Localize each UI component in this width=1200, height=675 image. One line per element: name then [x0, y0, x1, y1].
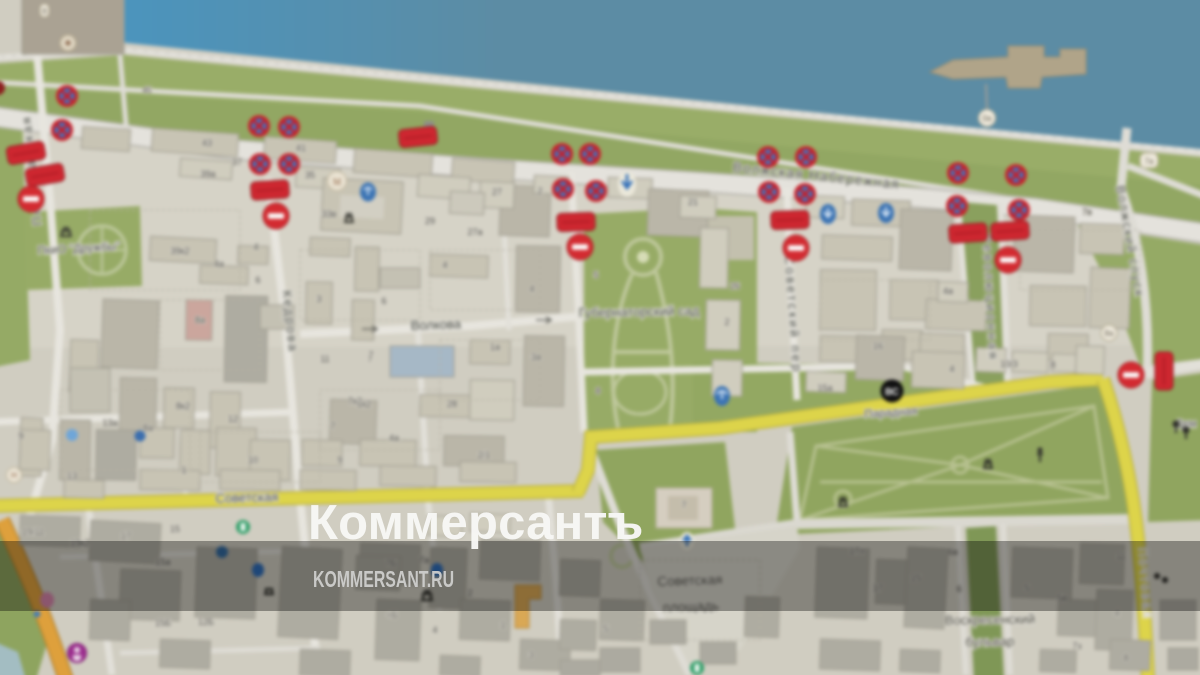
svg-text:2/1: 2/1	[478, 450, 491, 460]
svg-text:4: 4	[529, 284, 534, 294]
svg-text:7з: 7з	[1072, 641, 1081, 651]
svg-text:7а: 7а	[1145, 157, 1154, 166]
svg-text:12Б: 12Б	[198, 617, 214, 627]
svg-text:6: 6	[381, 296, 386, 306]
svg-text:8а: 8а	[1105, 329, 1114, 338]
svg-text:9: 9	[337, 455, 342, 465]
svg-text:27: 27	[492, 187, 502, 197]
svg-text:Советская: Советская	[215, 489, 278, 506]
svg-text:29: 29	[425, 216, 435, 226]
svg-text:1: 1	[500, 620, 505, 630]
svg-text:39к2: 39к2	[171, 246, 190, 256]
svg-text:16: 16	[873, 341, 883, 351]
svg-text:1а: 1а	[490, 342, 500, 352]
svg-text:8: 8	[1050, 360, 1055, 370]
svg-text:5: 5	[593, 270, 598, 280]
svg-text:2: 2	[724, 317, 729, 327]
svg-text:8к2: 8к2	[176, 401, 190, 411]
svg-text:28: 28	[447, 399, 457, 409]
svg-text:7: 7	[330, 421, 335, 431]
svg-text:Волкова: Волкова	[410, 316, 462, 333]
svg-text:М: М	[333, 177, 341, 187]
svg-text:27а: 27а	[467, 227, 482, 237]
svg-text:8: 8	[42, 7, 47, 16]
svg-text:45: 45	[143, 86, 152, 95]
svg-text:4: 4	[432, 625, 437, 635]
svg-text:12: 12	[228, 414, 238, 424]
svg-text:15а: 15а	[817, 383, 832, 393]
svg-text:26: 26	[730, 281, 740, 291]
svg-text:21: 21	[688, 197, 698, 207]
svg-text:4а: 4а	[943, 286, 953, 296]
svg-text:1: 1	[181, 465, 186, 475]
svg-text:7к2: 7к2	[348, 396, 362, 406]
svg-text:9: 9	[18, 431, 23, 441]
svg-text:37: 37	[232, 157, 242, 167]
svg-text:7: 7	[368, 355, 373, 364]
svg-text:0а: 0а	[983, 114, 992, 123]
svg-text:4а: 4а	[214, 259, 224, 269]
svg-text:8: 8	[595, 386, 600, 396]
svg-text:6: 6	[255, 275, 260, 285]
svg-text:7в: 7в	[1082, 207, 1092, 217]
svg-text:4: 4	[442, 260, 447, 270]
svg-text:бульвар: бульвар	[965, 634, 1014, 650]
svg-text:4: 4	[253, 242, 258, 252]
svg-text:8а: 8а	[195, 315, 205, 325]
svg-text:10/3: 10/3	[1000, 359, 1018, 369]
svg-text:33в: 33в	[322, 209, 337, 219]
svg-text:39а: 39а	[200, 169, 215, 179]
svg-text:8: 8	[1123, 653, 1128, 663]
svg-text:4а: 4а	[389, 433, 399, 443]
svg-text:13: 13	[67, 471, 77, 481]
svg-text:3а: 3а	[531, 352, 541, 362]
svg-text:15: 15	[170, 524, 180, 534]
svg-text:+Б: +Б	[386, 610, 397, 620]
svg-text:8а: 8а	[143, 423, 153, 433]
svg-text:19/11: 19/11	[22, 527, 44, 537]
svg-text:17: 17	[121, 531, 131, 541]
svg-text:5: 5	[603, 624, 608, 634]
svg-text:7: 7	[681, 500, 686, 510]
svg-text:Воскресенский: Воскресенский	[945, 611, 1035, 628]
svg-text:ВС: ВС	[885, 387, 899, 398]
svg-text:Губернаторский сад: Губернаторский сад	[578, 303, 699, 320]
svg-text:13а: 13а	[102, 418, 117, 428]
svg-text:3: 3	[316, 294, 321, 304]
svg-text:2: 2	[537, 186, 542, 196]
svg-text:35: 35	[305, 170, 315, 180]
svg-text:15Б: 15Б	[155, 618, 171, 628]
svg-text:3: 3	[528, 650, 533, 660]
svg-text:10: 10	[248, 455, 258, 465]
svg-text:41: 41	[296, 143, 306, 153]
svg-text:11: 11	[320, 354, 329, 364]
svg-text:43: 43	[202, 138, 212, 148]
svg-text:Н: Н	[11, 471, 17, 480]
svg-text:4: 4	[949, 364, 954, 374]
